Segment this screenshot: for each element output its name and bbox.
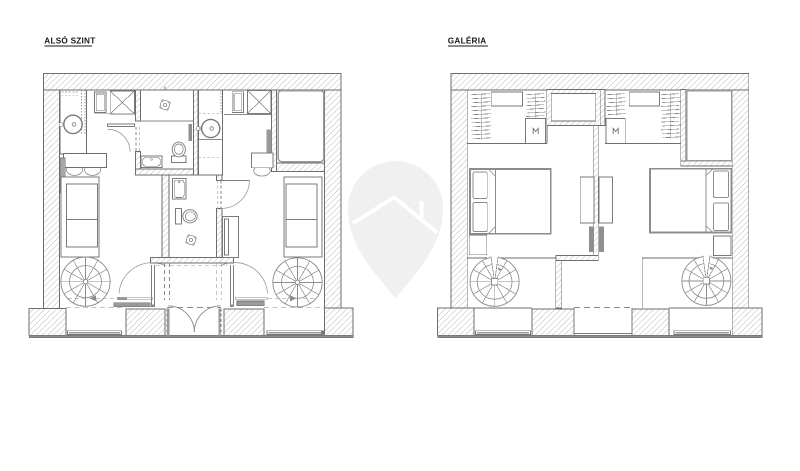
svg-text:ALSÓ SZINT: ALSÓ SZINT bbox=[44, 35, 95, 46]
svg-text:GALÉRIA: GALÉRIA bbox=[448, 36, 487, 46]
